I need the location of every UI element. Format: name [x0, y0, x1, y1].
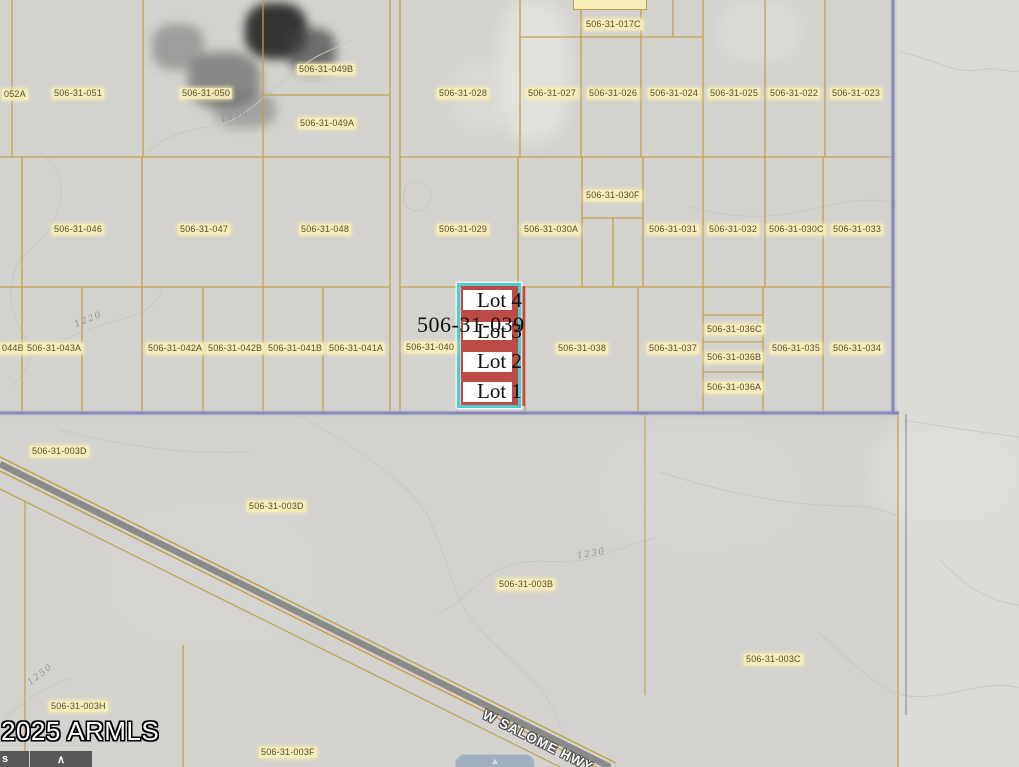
parcel-label: 506-31-037	[647, 343, 699, 354]
parcel-label: 506-31-003D	[247, 501, 306, 512]
parcel-label: 506-31-042A	[146, 343, 204, 354]
parcel-label: 506-31-024	[648, 88, 700, 99]
parcel-label: 506-31-049B	[297, 64, 355, 75]
parcel-label: 506-31-026	[587, 88, 639, 99]
labels-toggle-text: s	[2, 753, 8, 765]
map-control-button[interactable]: ▲	[455, 754, 535, 767]
parcel-labels-layer: 052A506-31-051506-31-050506-31-049B506-3…	[0, 0, 1019, 767]
parcel-label: 506-31-041A	[327, 343, 385, 354]
parcel-label: 506-31-025	[708, 88, 760, 99]
parcel-label: 506-31-036C	[705, 324, 764, 335]
parcel-label: 506-31-051	[52, 88, 104, 99]
parcel-label: 506-31-046	[52, 224, 104, 235]
parcel-label: 506-31-033	[831, 224, 883, 235]
collapse-toolbar-button[interactable]: ∧	[30, 751, 92, 767]
parcel-label: 506-31-050	[180, 88, 232, 99]
parcel-label: 506-31-034	[831, 343, 883, 354]
parcel-label: 506-31-003D	[30, 446, 89, 457]
parcel-label: 506-31-003C	[744, 654, 803, 665]
parcel-label: 506-31-030F	[584, 190, 642, 201]
parcel-label: 052A	[2, 89, 28, 100]
parcel-label: 506-31-027	[526, 88, 578, 99]
parcel-label: 506-31-042B	[206, 343, 264, 354]
cut-off-parcel-label	[573, 0, 647, 10]
parcel-label: 506-31-023	[830, 88, 882, 99]
parcel-label: 506-31-040	[404, 342, 456, 353]
contour-elevation-label: 1250	[219, 107, 250, 125]
parcel-label: 506-31-043A	[25, 343, 83, 354]
parcel-label: 506-31-036B	[705, 352, 763, 363]
parcel-label: 506-31-047	[178, 224, 230, 235]
parcel-label: 506-31-038	[556, 343, 608, 354]
parcel-label: 506-31-003F	[259, 747, 317, 758]
parcel-label: 044B	[0, 343, 26, 354]
parcel-label: 506-31-017C	[584, 19, 643, 30]
parcel-label: 506-31-049A	[298, 118, 356, 129]
parcel-label: 506-31-032	[707, 224, 759, 235]
parcel-label: 506-31-030A	[522, 224, 580, 235]
labels-toggle-button[interactable]: s	[0, 751, 29, 767]
parcel-label: 506-31-003B	[497, 579, 555, 590]
armls-watermark: 2025 ARMLS	[1, 716, 159, 747]
parcel-label: 506-31-003H	[49, 701, 108, 712]
parcel-label: 506-31-031	[647, 224, 699, 235]
contour-elevation-label: 1230	[576, 547, 606, 562]
contour-elevation-label: 1250	[26, 662, 55, 688]
parcel-label: 506-31-028	[437, 88, 489, 99]
map-viewport[interactable]: Lot 4Lot 3Lot 2Lot 1 506-31-039 052A506-…	[0, 0, 1019, 767]
chevron-up-icon: ∧	[57, 753, 65, 766]
parcel-label: 506-31-022	[768, 88, 820, 99]
parcel-label: 506-31-036A	[705, 382, 763, 393]
parcel-label: 506-31-035	[770, 343, 822, 354]
parcel-label: 506-31-041B	[266, 343, 324, 354]
arrow-up-icon: ▲	[491, 755, 500, 767]
parcel-label: 506-31-030C	[767, 224, 826, 235]
parcel-label: 506-31-048	[299, 224, 351, 235]
parcel-label: 506-31-029	[437, 224, 489, 235]
contour-elevation-label: 1220	[73, 310, 104, 330]
